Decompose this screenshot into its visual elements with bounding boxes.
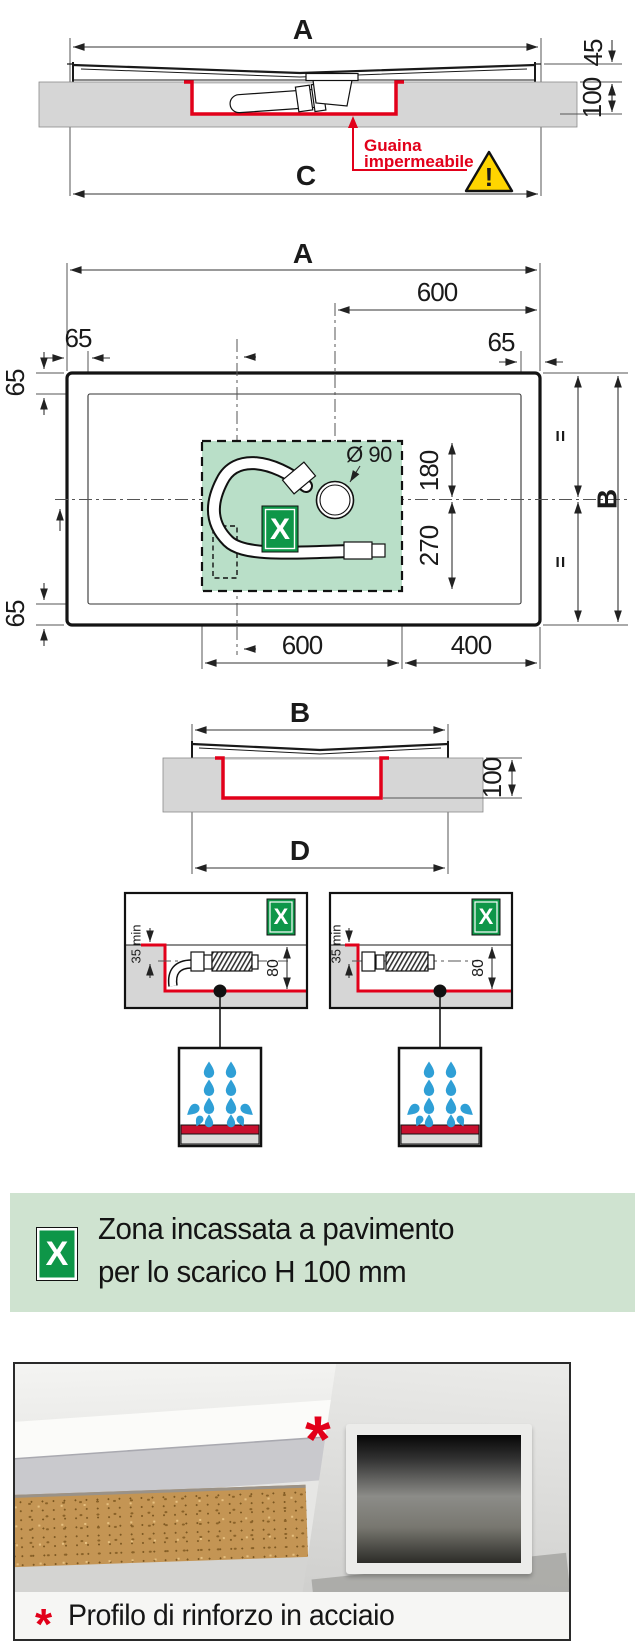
water-drainage-box	[399, 1048, 481, 1146]
callout-dot	[434, 985, 447, 998]
zone-x-badge: X	[267, 899, 295, 935]
dim-label-b: B	[290, 697, 310, 728]
dim-80: 80	[265, 947, 287, 989]
dim-label-35min: 35 min	[128, 924, 143, 963]
dim-label-600-top: 600	[417, 277, 458, 307]
legend-line-2: per lo scarico H 100 mm	[98, 1250, 454, 1293]
dim-label-c: C	[296, 160, 316, 191]
membrane-bar	[401, 1125, 479, 1134]
dim-80: 80	[470, 947, 492, 989]
recess-cavity	[223, 760, 381, 798]
cross-section-ac: A Guaina impermeabile ! C 45	[0, 0, 635, 235]
drain-hole	[317, 482, 354, 519]
shower-tray-profile	[192, 741, 448, 758]
dim-65-left-lower: 65	[0, 583, 44, 646]
drain-detail-section: 80 35 min X 80	[0, 880, 635, 1165]
straight-fitting	[362, 952, 434, 971]
dim-label-100: 100	[477, 757, 507, 798]
dim-65-top-right: 65	[488, 327, 563, 362]
elbow-fitting	[173, 952, 258, 986]
shower-tray-profile	[67, 62, 541, 82]
legend-banner: X Zona incassata a pavimento per lo scar…	[10, 1193, 635, 1312]
zone-x-label: X	[46, 1235, 69, 1274]
detail-box-elbow: 80 35 min X	[125, 893, 307, 1048]
screed-bar	[401, 1134, 479, 1144]
plan-view: Ø 90 X A 600 65 65 65 65 180 270	[0, 235, 635, 680]
screed-bar	[181, 1134, 259, 1144]
equal-mark: =	[550, 556, 572, 568]
cross-section-bd: B 100 D	[0, 680, 635, 880]
membrane-label-line2: impermeabile	[364, 152, 474, 171]
dim-label-400: 400	[451, 630, 492, 660]
dim-a: A	[73, 14, 538, 47]
dim-a: A	[70, 238, 537, 270]
zone-x-label: X	[274, 904, 289, 929]
dim-label-65: 65	[65, 323, 92, 353]
caption-text: Profilo di rinforzo in acciaio	[68, 1599, 394, 1633]
dim-label-65: 65	[0, 369, 30, 396]
legend-line-1: Zona incassata a pavimento	[98, 1207, 454, 1250]
dim-label-b: B	[591, 489, 622, 509]
dim-label-a: A	[293, 238, 313, 269]
dim-65-top-left: 65	[46, 323, 110, 358]
dim-600-400-bottom: 600 400	[205, 630, 537, 663]
dim-label-a: A	[293, 14, 313, 45]
zone-x-badge: X	[472, 899, 500, 935]
dim-label-600-bottom: 600	[282, 630, 323, 660]
membrane-bar	[181, 1125, 259, 1134]
asterisk-marker: *	[305, 1406, 331, 1472]
dim-label-100: 100	[577, 77, 607, 118]
reinforcement-photo: * * Profilo di rinforzo in acciaio	[13, 1362, 571, 1641]
dim-65-left-upper: 65	[0, 352, 44, 415]
steel-profile-opening	[357, 1435, 521, 1563]
dim-label-d: D	[290, 835, 310, 866]
dim-600-top: 600	[338, 277, 537, 310]
zone-x-badge: X	[262, 506, 298, 552]
detail-box-straight: 80 35 min X	[328, 893, 512, 1048]
zone-x-label: X	[479, 904, 494, 929]
dim-d: D	[195, 835, 445, 868]
dim-b: B	[195, 697, 445, 730]
zone-x-label: X	[270, 513, 290, 546]
warning-exclamation: !	[485, 162, 494, 192]
photo-caption: * Profilo di rinforzo in acciaio	[15, 1592, 569, 1639]
dim-label-65: 65	[0, 600, 30, 627]
dim-label-65: 65	[488, 327, 515, 357]
dim-label-diameter: Ø 90	[346, 442, 392, 467]
legend-text: Zona incassata a pavimento per lo scaric…	[98, 1207, 454, 1293]
dim-label-180: 180	[414, 450, 444, 491]
dim-label-270: 270	[414, 525, 444, 566]
dim-label-45: 45	[578, 39, 608, 66]
dim-label-80: 80	[265, 959, 282, 977]
dim-label-80: 80	[470, 959, 487, 977]
installation-diagram-page: A Guaina impermeabile ! C 45	[0, 0, 635, 1650]
equal-mark: =	[550, 430, 572, 442]
steel-profile	[346, 1424, 532, 1574]
zone-x-badge: X	[36, 1227, 78, 1281]
callout-dot	[214, 985, 227, 998]
water-drainage-box	[179, 1048, 261, 1146]
